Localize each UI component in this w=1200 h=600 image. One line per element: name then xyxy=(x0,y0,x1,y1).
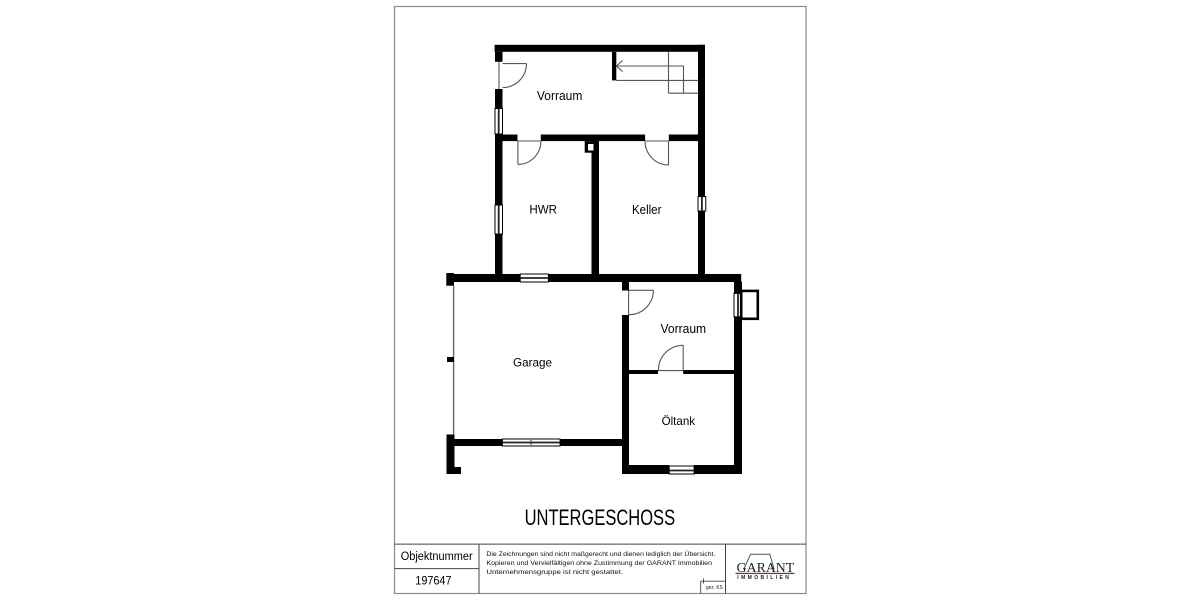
svg-text:Die Zeichnungen sind nicht maß: Die Zeichnungen sind nicht maßgerecht un… xyxy=(486,550,715,558)
svg-text:Garage: Garage xyxy=(513,357,552,370)
svg-text:197647: 197647 xyxy=(415,574,451,588)
svg-text:IMMOBILIEN: IMMOBILIEN xyxy=(737,575,789,581)
svg-text:Vorraum: Vorraum xyxy=(661,322,707,336)
svg-text:HWR: HWR xyxy=(529,203,557,217)
svg-text:gez. KS: gez. KS xyxy=(706,585,723,591)
svg-text:Vorraum: Vorraum xyxy=(537,89,583,103)
svg-text:GARANT: GARANT xyxy=(737,560,795,575)
svg-text:UNTERGESCHOSS: UNTERGESCHOSS xyxy=(525,505,676,530)
svg-text:Unternehmensgruppe ist nicht g: Unternehmensgruppe ist nicht gestattet. xyxy=(486,569,623,576)
svg-text:Objektnummer: Objektnummer xyxy=(401,549,473,563)
svg-text:Öltank: Öltank xyxy=(662,415,696,428)
svg-text:Kopieren und Vervielfältigen o: Kopieren und Vervielfältigen ohne Zustim… xyxy=(486,560,712,567)
svg-text:Keller: Keller xyxy=(632,203,661,217)
